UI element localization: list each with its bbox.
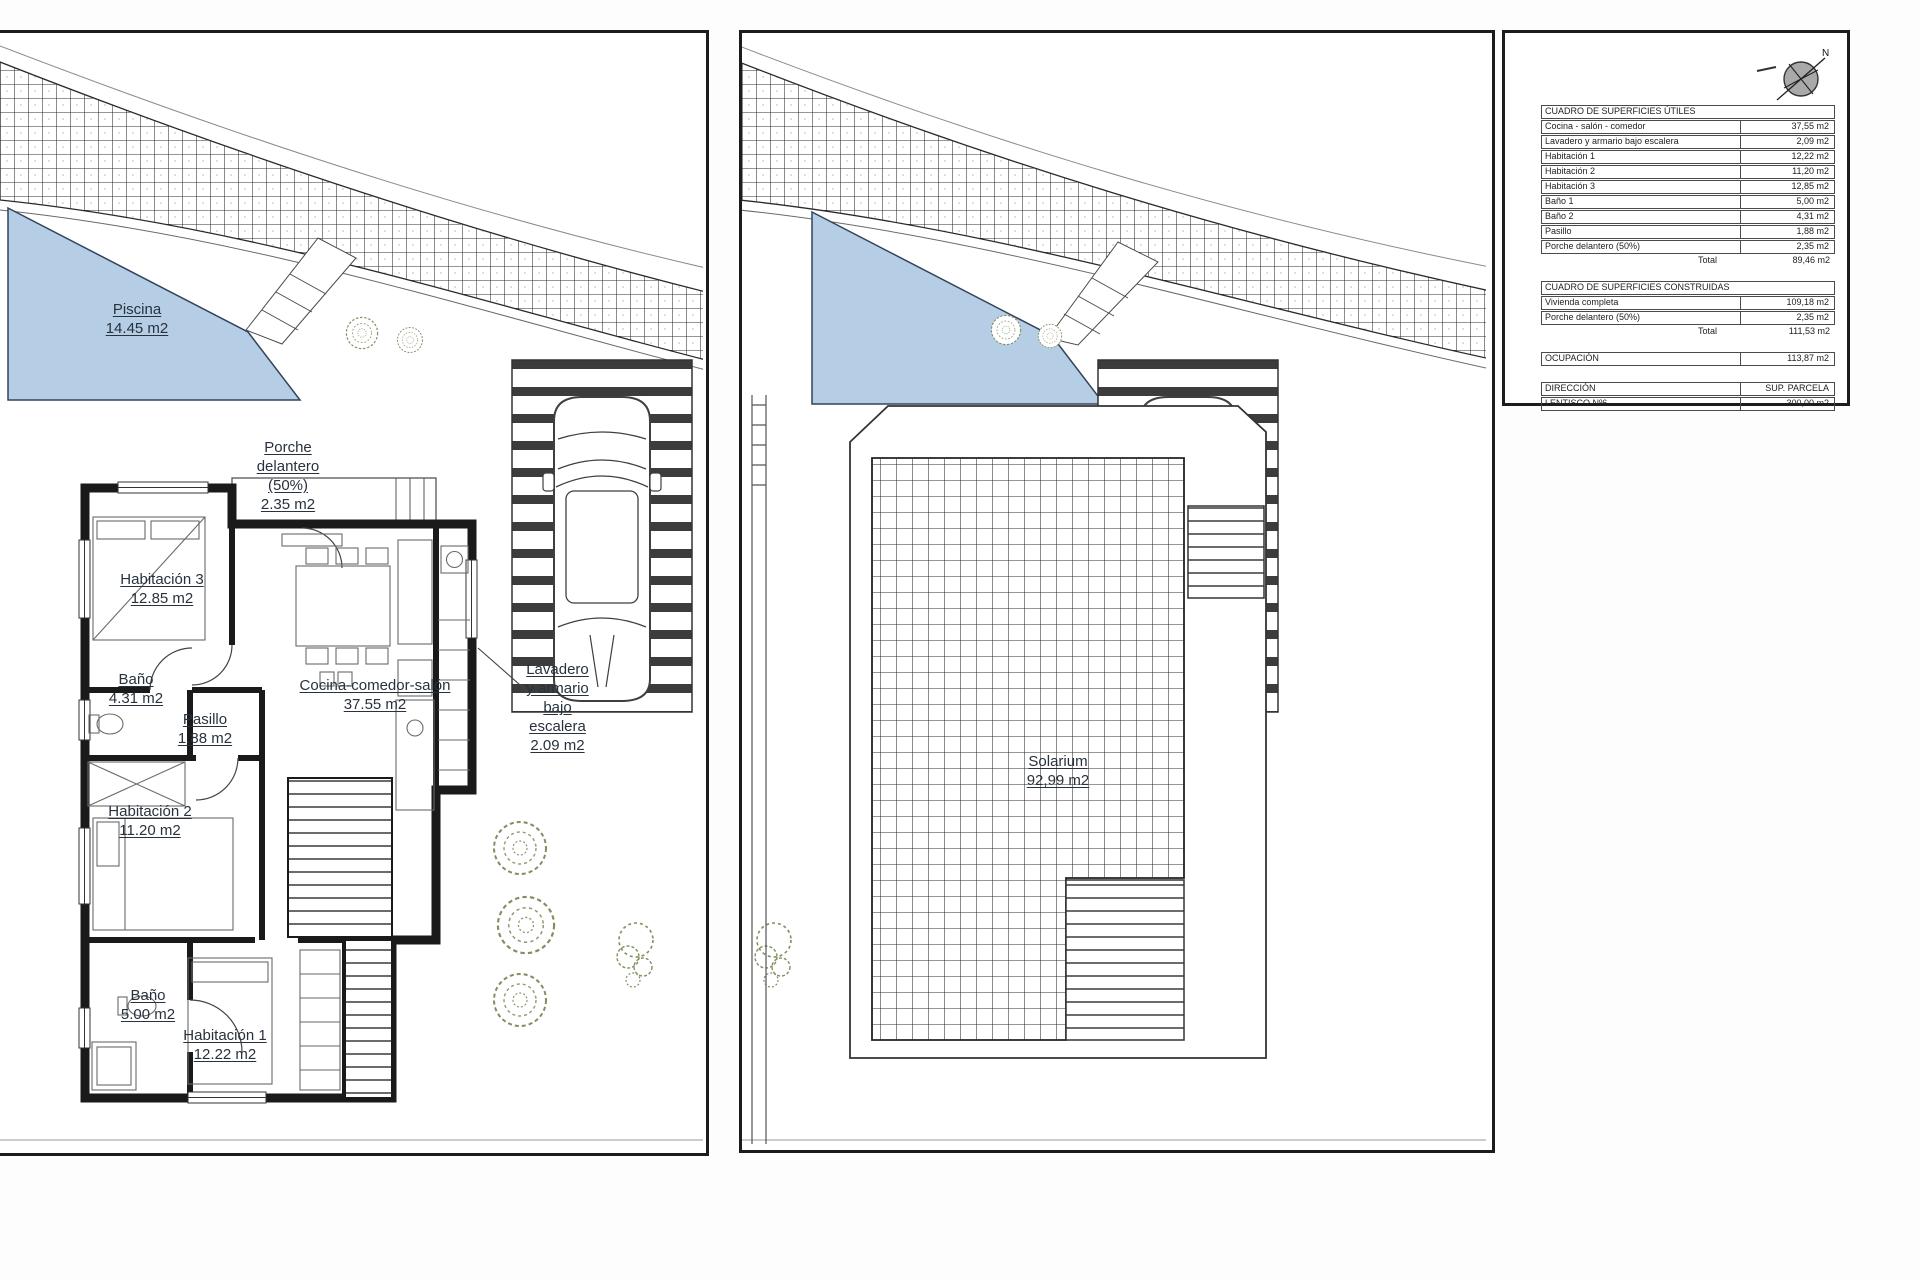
room-name: Habitación 3 — [87, 570, 237, 589]
table-row: Vivienda completa109,18 m2 — [1541, 296, 1835, 310]
room-area: 2.35 m2 — [213, 495, 363, 514]
surface-tables: CUADRO DE SUPERFICIES ÚTILES Cocina - sa… — [1541, 105, 1835, 425]
room-area: 92,99 m2 — [988, 771, 1128, 790]
table-row: LENTISCO Nº6300,00 m2 — [1541, 397, 1835, 411]
room-name: Habitación 1 — [150, 1026, 300, 1045]
table-row: Lavadero y armario bajo escalera2,09 m2 — [1541, 135, 1835, 149]
table-row: Baño 15,00 m2 — [1541, 195, 1835, 209]
useful-surfaces-table: CUADRO DE SUPERFICIES ÚTILES Cocina - sa… — [1541, 105, 1835, 267]
table-row: Habitación 211,20 m2 — [1541, 165, 1835, 179]
architectural-drawing-sheet: Piscina 14.45 m2 Porche delantero (50%) … — [0, 0, 1920, 1280]
room-name: bajo — [500, 698, 615, 717]
table-row: Porche delantero (50%)2,35 m2 — [1541, 240, 1835, 254]
room-name: delantero — [213, 457, 363, 476]
table-total-row: Total89,46 m2 — [1541, 255, 1835, 267]
room-name: Baño — [76, 670, 196, 689]
room-area: 12.85 m2 — [87, 589, 237, 608]
table-row: Habitación 312,85 m2 — [1541, 180, 1835, 194]
occupation-table: OCUPACIÓN113,87 m2 — [1541, 352, 1835, 366]
room-area: 4.31 m2 — [76, 689, 196, 708]
room-area: 1.88 m2 — [145, 729, 265, 748]
kitchen-living-label: Cocina-comedor-salón 37.55 m2 — [277, 676, 473, 714]
table-row: Porche delantero (50%)2,35 m2 — [1541, 311, 1835, 325]
room-name: Solarium — [988, 752, 1128, 771]
room-area: 12.22 m2 — [150, 1045, 300, 1064]
room-name: Baño — [88, 986, 208, 1005]
room-area: 5.00 m2 — [88, 1005, 208, 1024]
hallway-label: Pasillo 1.88 m2 — [145, 710, 265, 748]
room-name: y armario — [500, 679, 615, 698]
table-header: CUADRO DE SUPERFICIES ÚTILES — [1541, 105, 1835, 119]
bathroom1-label: Baño 5.00 m2 — [88, 986, 208, 1024]
room-area: 37.55 m2 — [277, 695, 473, 714]
table-row: Cocina - salón - comedor37,55 m2 — [1541, 120, 1835, 134]
room-name: (50%) — [213, 476, 363, 495]
room-area: 11.20 m2 — [75, 821, 225, 840]
room-name: escalera — [500, 717, 615, 736]
porch-label: Porche delantero (50%) 2.35 m2 — [213, 438, 363, 514]
room-name: Piscina — [67, 300, 207, 319]
laundry-label: Lavadero y armario bajo escalera 2.09 m2 — [500, 660, 615, 755]
pool-label: Piscina 14.45 m2 — [67, 300, 207, 338]
room-name: Porche — [213, 438, 363, 457]
room-area: 2.09 m2 — [500, 736, 615, 755]
bedroom2-label: Habitación 2 11.20 m2 — [75, 802, 225, 840]
table-row: Habitación 112,22 m2 — [1541, 150, 1835, 164]
room-name: Lavadero — [500, 660, 615, 679]
table-total-row: Total111,53 m2 — [1541, 326, 1835, 338]
table-row: Pasillo1,88 m2 — [1541, 225, 1835, 239]
room-name: Cocina-comedor-salón — [277, 676, 473, 695]
north-compass-icon: N — [1749, 45, 1841, 109]
compass-north-label: N — [1822, 48, 1829, 59]
bedroom1-label: Habitación 1 12.22 m2 — [150, 1026, 300, 1064]
address-table: DIRECCIÓNSUP. PARCELA LENTISCO Nº6300,00… — [1541, 382, 1835, 411]
table-row: OCUPACIÓN113,87 m2 — [1541, 352, 1835, 366]
built-surfaces-table: CUADRO DE SUPERFICIES CONSTRUIDAS Vivien… — [1541, 281, 1835, 338]
solarium-label: Solarium 92,99 m2 — [988, 752, 1128, 790]
table-row: Baño 24,31 m2 — [1541, 210, 1835, 224]
room-name: Pasillo — [145, 710, 265, 729]
table-row: DIRECCIÓNSUP. PARCELA — [1541, 382, 1835, 396]
bedroom3-label: Habitación 3 12.85 m2 — [87, 570, 237, 608]
room-area: 14.45 m2 — [67, 319, 207, 338]
bathroom2-label: Baño 4.31 m2 — [76, 670, 196, 708]
surfaces-info-panel: N CUADRO DE SUPERFICIES ÚTILES Cocina - … — [1502, 30, 1850, 406]
table-header: CUADRO DE SUPERFICIES CONSTRUIDAS — [1541, 281, 1835, 295]
roof-solarium-plan-panel — [739, 30, 1495, 1153]
room-name: Habitación 2 — [75, 802, 225, 821]
